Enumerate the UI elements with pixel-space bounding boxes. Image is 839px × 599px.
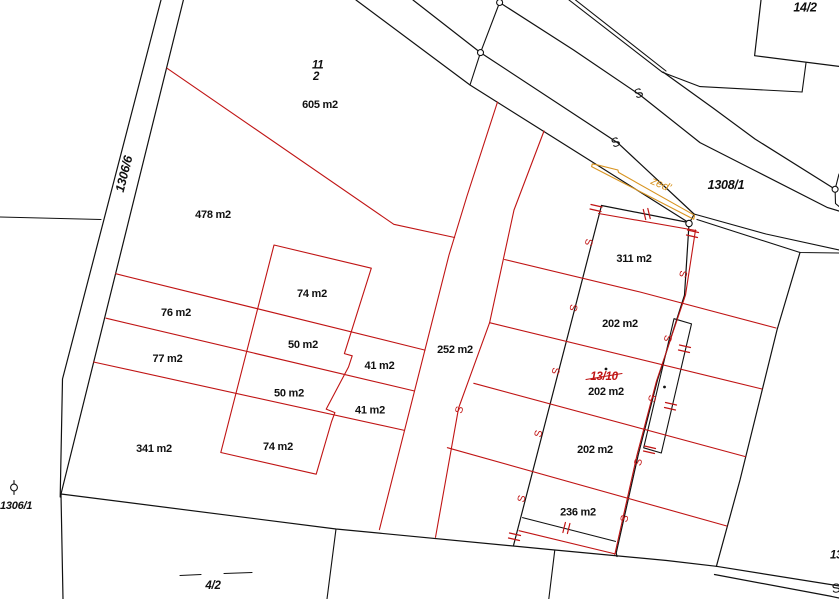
svg-text:S: S [677, 269, 690, 279]
svg-text:S: S [609, 133, 623, 150]
svg-text:252 m2: 252 m2 [437, 344, 473, 356]
svg-text:202 m2: 202 m2 [577, 444, 613, 456]
svg-text:236 m2: 236 m2 [560, 507, 596, 519]
svg-text:13: 13 [830, 550, 839, 562]
svg-text:S: S [646, 394, 659, 404]
svg-text:S: S [550, 366, 563, 376]
svg-text:41 m2: 41 m2 [355, 405, 385, 417]
svg-text:202 m2: 202 m2 [588, 386, 624, 398]
svg-text:S: S [567, 303, 580, 313]
svg-text:S: S [453, 405, 466, 415]
svg-text:1306/1: 1306/1 [0, 500, 32, 512]
svg-text:76 m2: 76 m2 [161, 307, 191, 319]
svg-text:74 m2: 74 m2 [297, 288, 327, 300]
svg-text:2: 2 [312, 71, 320, 83]
svg-text:S: S [618, 514, 631, 524]
svg-text:S: S [662, 334, 675, 344]
svg-text:14/2: 14/2 [793, 1, 817, 15]
svg-text:74 m2: 74 m2 [263, 441, 293, 453]
svg-text:50 m2: 50 m2 [274, 388, 304, 400]
svg-text:S: S [632, 457, 645, 467]
svg-text:4/2: 4/2 [204, 580, 221, 592]
svg-text:S: S [632, 84, 646, 101]
svg-text:478 m2: 478 m2 [195, 209, 231, 221]
svg-text:311 m2: 311 m2 [616, 253, 651, 265]
svg-text:13/10: 13/10 [590, 371, 618, 383]
svg-text:50 m2: 50 m2 [288, 339, 318, 351]
svg-text:S: S [583, 238, 596, 248]
svg-text:202 m2: 202 m2 [602, 318, 638, 330]
svg-text:1306/6: 1306/6 [113, 153, 136, 193]
svg-text:1308/1: 1308/1 [708, 178, 745, 192]
svg-text:341 m2: 341 m2 [136, 443, 172, 455]
svg-text:605 m2: 605 m2 [302, 99, 338, 111]
svg-text:41 m2: 41 m2 [365, 360, 395, 372]
svg-text:S: S [831, 580, 839, 596]
svg-text:77 m2: 77 m2 [153, 353, 183, 365]
svg-text:11: 11 [312, 60, 323, 72]
